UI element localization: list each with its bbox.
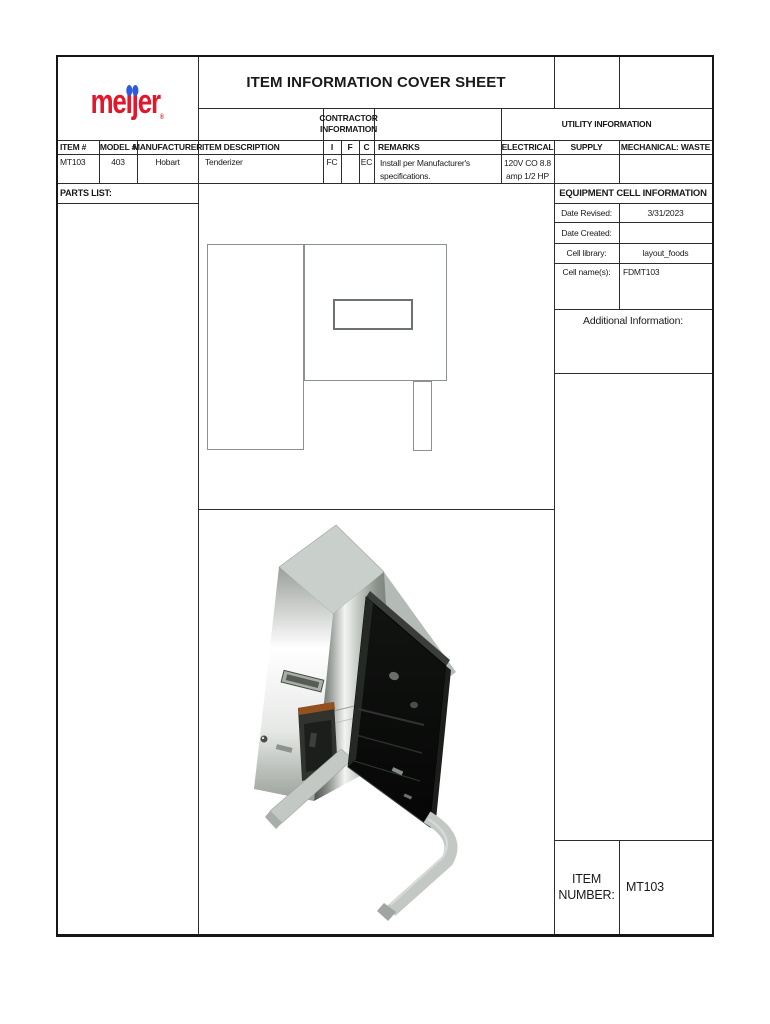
item-number-value: MT103 bbox=[60, 157, 85, 167]
contractor-c-value: EC bbox=[359, 154, 374, 169]
col-header-item: ITEM # bbox=[60, 142, 86, 152]
divider bbox=[554, 57, 555, 108]
date-revised-value: 3/31/2023 bbox=[619, 203, 712, 222]
cell-names-value: FDMT103 bbox=[623, 267, 659, 277]
electrical-line2: amp 1/2 HP bbox=[501, 170, 554, 183]
col-header-electrical: ELECTRICAL bbox=[501, 140, 554, 154]
plan-rect-left bbox=[207, 244, 304, 450]
manufacturer-value: Hobart bbox=[137, 154, 198, 169]
document-page: meijer® ITEM INFORMATION COVER SHEET CON… bbox=[0, 0, 770, 1024]
logo-letters: me bbox=[91, 83, 126, 121]
page-title: ITEM INFORMATION COVER SHEET bbox=[198, 57, 554, 108]
equipment-cell-title: EQUIPMENT CELL INFORMATION bbox=[554, 183, 712, 203]
plan-rect-stub bbox=[413, 381, 432, 451]
description-value: Tenderizer bbox=[205, 157, 243, 167]
divider bbox=[554, 373, 712, 374]
col-header-remarks: REMARKS bbox=[378, 142, 420, 152]
meijer-logo-text: meijer® bbox=[91, 77, 164, 121]
electrical-line1: 120V CO 8.8 bbox=[501, 157, 554, 170]
cell-library-label: Cell library: bbox=[554, 243, 619, 263]
utility-information-header: UTILITY INFORMATION bbox=[501, 108, 712, 140]
col-header-mechanical: MECHANICAL: WASTE bbox=[619, 140, 712, 154]
logo-letters: er bbox=[138, 83, 160, 121]
electrical-value: 120V CO 8.8 amp 1/2 HP bbox=[501, 157, 554, 183]
date-created-label: Date Created: bbox=[554, 222, 619, 243]
registered-mark: ® bbox=[160, 114, 164, 121]
date-created-value bbox=[619, 222, 712, 243]
meijer-logo: meijer® bbox=[58, 57, 197, 140]
item-number-label-line2: NUMBER: bbox=[558, 888, 614, 902]
parts-list-label: PARTS LIST: bbox=[60, 188, 112, 198]
col-header-supply: SUPPLY bbox=[554, 140, 619, 154]
cell-names-label: Cell name(s): bbox=[554, 263, 619, 281]
model-value: 403 bbox=[99, 154, 137, 169]
item-number-box-value: MT103 bbox=[626, 880, 664, 894]
col-header-f: F bbox=[341, 140, 359, 154]
cell-library-value: layout_foods bbox=[619, 243, 712, 263]
contractor-line1: CONTRACTOR bbox=[319, 113, 377, 123]
remarks-line2: specifications. bbox=[380, 170, 470, 183]
col-header-description: ITEM DESCRIPTION bbox=[202, 142, 280, 152]
divider bbox=[554, 309, 712, 310]
contractor-information-header: CONTRACTOR INFORMATION bbox=[323, 108, 374, 140]
divider bbox=[58, 203, 198, 204]
divider bbox=[619, 840, 620, 934]
remarks-value: Install per Manufacturer's specification… bbox=[380, 157, 470, 183]
item-number-label: ITEM NUMBER: bbox=[554, 840, 619, 934]
item-information-cover-sheet: meijer® ITEM INFORMATION COVER SHEET CON… bbox=[56, 55, 714, 937]
plan-rect-inner bbox=[333, 299, 413, 330]
additional-information-label: Additional Information: bbox=[554, 315, 712, 327]
item-number-label-line1: ITEM bbox=[572, 872, 601, 886]
date-revised-label: Date Revised: bbox=[554, 203, 619, 222]
tenderizer-3d-render bbox=[198, 509, 554, 934]
contractor-f-value bbox=[341, 154, 359, 169]
contractor-line2: INFORMATION bbox=[320, 124, 377, 134]
col-header-model: MODEL # bbox=[99, 140, 137, 154]
remarks-line1: Install per Manufacturer's bbox=[380, 157, 470, 170]
col-header-c: C bbox=[359, 140, 374, 154]
col-header-i: I bbox=[323, 140, 341, 154]
col-header-manufacturer: MANUFACTURER bbox=[137, 140, 198, 154]
contractor-i-value: FC bbox=[323, 154, 341, 169]
divider bbox=[619, 57, 620, 108]
